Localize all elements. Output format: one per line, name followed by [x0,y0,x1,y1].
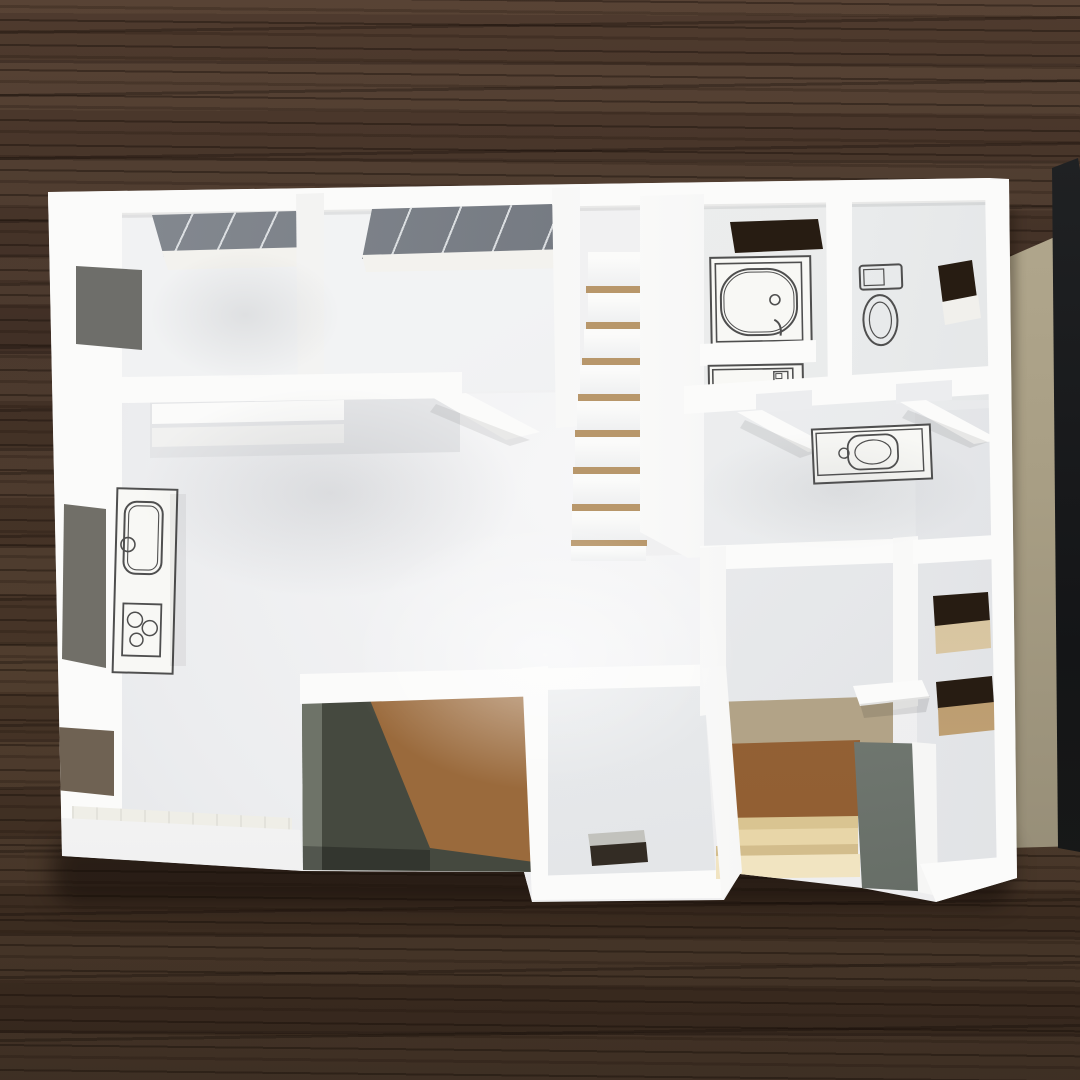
stair-gap-3 [578,394,648,401]
stair-tread-6 [573,474,646,504]
bathtub-print [709,255,813,353]
bedroom1-soft-shadow [150,250,340,380]
stair-tread-1 [588,293,646,322]
stair-tread-5 [575,437,647,467]
stair-gap-6 [572,504,648,511]
stair-gap-1 [586,322,648,329]
stair-gap-4 [575,430,648,437]
photo-canvas [0,0,1080,1080]
architectural-model [0,0,1080,1080]
stair-gap-2 [582,358,648,365]
toilet-outline [854,261,911,355]
stair-tread-4 [577,401,647,430]
toilet-print [854,261,911,355]
bathtub-outline [711,257,807,347]
stair-gap-5 [573,467,648,474]
stair-tread-3 [580,365,646,394]
corridor-soft-shadow [700,430,980,550]
stair-tread-2 [584,329,646,358]
living-room-highlight [350,520,740,790]
